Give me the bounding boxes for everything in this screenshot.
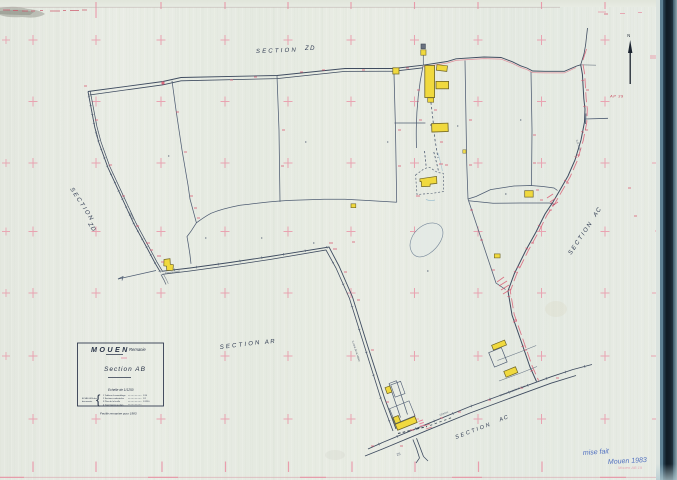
svg-text:4 Tous figures au plan: 4 Tous figures au plan <box>103 403 124 406</box>
svg-text:SECTION: SECTION <box>220 340 262 351</box>
svg-text:{: { <box>96 392 101 407</box>
svg-text:Feuille remaniee pour 1983: Feuille remaniee pour 1983 <box>100 412 137 416</box>
svg-text:ECHELLES des: ECHELLES des <box>82 398 97 400</box>
svg-text:Section AB: Section AB <box>104 366 146 373</box>
svg-text:AC: AC <box>592 206 603 219</box>
svg-text:25: 25 <box>396 452 401 457</box>
svg-text:C.rural de la Vallee: C.rural de la Vallee <box>351 340 362 363</box>
svg-text:mise fait: mise fait <box>583 448 611 457</box>
svg-text:AP 39: AP 39 <box>609 94 624 99</box>
svg-text:AC: AC <box>498 414 510 424</box>
svg-text:MOUEN: MOUEN <box>91 345 130 354</box>
svg-text:Chemin rural dit du Bas: Chemin rural dit du Bas <box>499 384 526 398</box>
svg-text:1/2: 1/2 <box>143 398 147 400</box>
svg-text:SECTION: SECTION <box>256 48 298 55</box>
svg-text:1/1250: 1/1250 <box>143 401 150 403</box>
svg-text:ZD: ZD <box>304 46 316 52</box>
svg-text:SECTION: SECTION <box>68 187 94 223</box>
svg-text:N: N <box>627 33 630 38</box>
svg-text:documents: documents <box>82 400 92 403</box>
svg-text:SECTION: SECTION <box>568 220 595 256</box>
svg-text:Echelle de 1/1250: Echelle de 1/1250 <box>108 388 134 392</box>
svg-text:2 Sections cadastrales: 2 Sections cadastrales <box>103 397 124 400</box>
svg-text:SECTION: SECTION <box>455 421 493 440</box>
svg-text:Mouen AB 19: Mouen AB 19 <box>618 465 643 470</box>
svg-text:Remanie: Remanie <box>129 347 146 352</box>
svg-text:3 Plan de la feuille: 3 Plan de la feuille <box>103 401 121 403</box>
svg-text:AR: AR <box>264 339 277 346</box>
svg-text:1 Tableau d assemblage: 1 Tableau d assemblage <box>103 395 126 397</box>
svg-text:1/10: 1/10 <box>143 395 148 397</box>
